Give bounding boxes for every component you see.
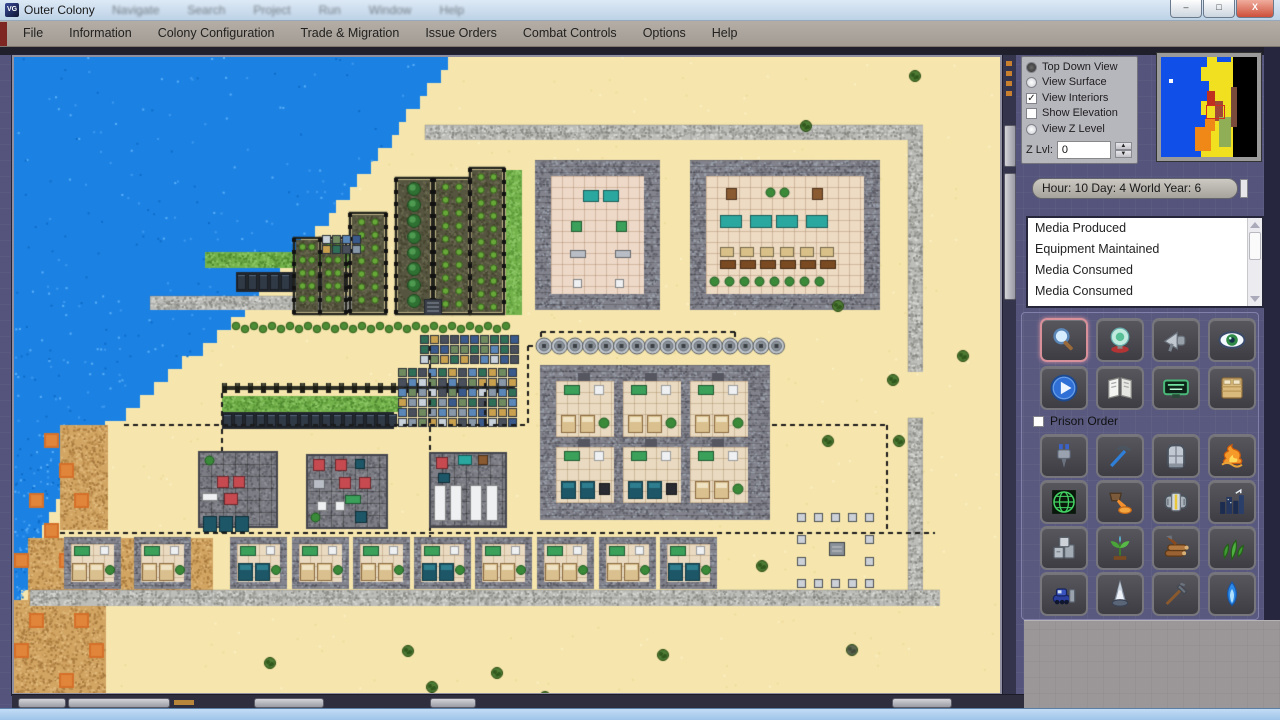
- background-menu-item: Run: [319, 3, 341, 17]
- crystal-ball-icon: [1105, 325, 1135, 355]
- map-horizontal-scrollbar[interactable]: [12, 694, 1024, 709]
- app-icon: VG: [5, 3, 19, 17]
- tool-bulldozer-button[interactable]: [1040, 572, 1088, 616]
- z-level-label: Z Lvl:: [1026, 144, 1053, 156]
- tool-book-button[interactable]: [1096, 366, 1144, 410]
- tool-crystal-ball-button[interactable]: [1096, 318, 1144, 362]
- close-button[interactable]: X: [1236, 0, 1274, 18]
- sprout-icon: [1105, 533, 1135, 563]
- bulldozer-icon: [1049, 579, 1079, 609]
- taskbar-edge: [0, 708, 1280, 720]
- globe-grid-icon: [1049, 487, 1079, 517]
- scrollbar-tick: [1006, 71, 1012, 76]
- spinner-down-icon[interactable]: ▼: [1115, 150, 1132, 158]
- door-icon: [1161, 441, 1191, 471]
- city-icon: [1217, 487, 1247, 517]
- map-frame: [12, 55, 1002, 695]
- spinner-up-icon[interactable]: ▲: [1115, 142, 1132, 150]
- drill-icon: [1049, 441, 1079, 471]
- checkbox-checked[interactable]: ✓: [1026, 93, 1037, 104]
- minimap-region: [1169, 79, 1173, 83]
- menu-bar: FileInformationColony ConfigurationTrade…: [0, 20, 1280, 47]
- menu-help[interactable]: Help: [699, 26, 751, 40]
- title-bar: VG Outer Colony NavigateSearchProjectRun…: [0, 0, 1280, 21]
- background-menu-item: Search: [187, 3, 225, 17]
- tool-cone-button[interactable]: [1096, 572, 1144, 616]
- background-window-menu: NavigateSearchProjectRunWindowHelp: [112, 3, 464, 17]
- tool-pickaxe-button[interactable]: [1096, 434, 1144, 478]
- tool-fire-button[interactable]: [1208, 434, 1256, 478]
- stone-icon: [1049, 533, 1079, 563]
- z-level-input[interactable]: 0: [1057, 141, 1111, 159]
- list-item[interactable]: Media Consumed: [1028, 260, 1248, 281]
- window-title: Outer Colony: [24, 3, 95, 17]
- scrollbar-tick: [1006, 91, 1012, 96]
- tool-play-button[interactable]: [1040, 366, 1088, 410]
- tool-drill-button[interactable]: [1040, 434, 1088, 478]
- minimap-region: [1219, 117, 1231, 147]
- view-option-view-z-level: View Z Level: [1026, 122, 1105, 136]
- tool-logs-button[interactable]: [1152, 526, 1200, 570]
- minimize-button[interactable]: –: [1170, 0, 1202, 18]
- menu-file[interactable]: File: [10, 26, 56, 40]
- tool-stone-button[interactable]: [1040, 526, 1088, 570]
- view-option-label: View Z Level: [1042, 123, 1105, 135]
- neon-sign-icon: [1161, 373, 1191, 403]
- minimap-region: [1201, 57, 1207, 67]
- herb-icon: [1217, 533, 1247, 563]
- tool-magnifier-button[interactable]: [1040, 318, 1088, 362]
- engine-icon: [1161, 487, 1191, 517]
- scroll-thumb[interactable]: [892, 698, 952, 708]
- tool-globe-grid-button[interactable]: [1040, 480, 1088, 524]
- radio-checked[interactable]: [1026, 62, 1037, 73]
- view-option-top-down-view: Top Down View: [1026, 60, 1118, 74]
- bottom-right-panel: [1024, 620, 1280, 709]
- view-option-view-interiors: ✓View Interiors: [1026, 91, 1108, 105]
- scroll-up-icon[interactable]: [1250, 222, 1260, 228]
- tool-crucible-button[interactable]: [1096, 480, 1144, 524]
- scrollbar-tick: [1006, 61, 1012, 66]
- prison-order-row: Prison Order: [1033, 414, 1118, 428]
- scrollbar-tick: [174, 700, 194, 705]
- background-menu-item: Help: [439, 3, 464, 17]
- menu-trade-migration[interactable]: Trade & Migration: [287, 26, 412, 40]
- rake-icon: [1161, 579, 1191, 609]
- minimap-viewport: [1206, 105, 1225, 119]
- background-menu-item: Window: [369, 3, 412, 17]
- scroll-thumb[interactable]: [254, 698, 324, 708]
- list-item[interactable]: Media Produced: [1028, 218, 1248, 239]
- minimap-region: [1217, 57, 1231, 62]
- tool-city-button[interactable]: [1208, 480, 1256, 524]
- menu-options[interactable]: Options: [630, 26, 699, 40]
- play-icon: [1049, 373, 1079, 403]
- view-option-label: View Interiors: [1042, 92, 1108, 104]
- tool-herb-button[interactable]: [1208, 526, 1256, 570]
- scroll-thumb[interactable]: [430, 698, 476, 708]
- logs-icon: [1161, 533, 1191, 563]
- menu-combat-controls[interactable]: Combat Controls: [510, 26, 630, 40]
- magnifier-icon: [1049, 325, 1079, 355]
- pickaxe-icon: [1105, 441, 1135, 471]
- map-canvas[interactable]: [14, 57, 1000, 693]
- menu-issue-orders[interactable]: Issue Orders: [412, 26, 510, 40]
- minimap-region: [1231, 87, 1237, 127]
- megaphone-icon: [1161, 325, 1191, 355]
- outer-colony-window: VG Outer Colony NavigateSearchProjectRun…: [0, 0, 1280, 720]
- minimap[interactable]: [1157, 53, 1261, 161]
- background-menu-item: Project: [253, 3, 290, 17]
- scrollbar-tick: [1006, 81, 1012, 86]
- z-level-spinner: ▲▼: [1115, 142, 1132, 158]
- time-display-scrollbar[interactable]: [1240, 179, 1248, 198]
- menu-information[interactable]: Information: [56, 26, 145, 40]
- scroll-thumb[interactable]: [68, 698, 170, 708]
- radio-unchecked[interactable]: [1026, 124, 1037, 135]
- scroll-thumb[interactable]: [1249, 232, 1261, 260]
- fire-icon: [1217, 441, 1247, 471]
- tool-eye-button[interactable]: [1208, 318, 1256, 362]
- bed-icon: [1217, 373, 1247, 403]
- event-list-items: Media ProducedEquipment MaintainedMedia …: [1028, 218, 1248, 306]
- view-options-panel: Top Down ViewView Surface✓View Interiors…: [1021, 56, 1138, 164]
- minimap-region: [1205, 119, 1215, 131]
- scroll-thumb[interactable]: [1004, 125, 1016, 167]
- tool-neon-sign-button[interactable]: [1152, 366, 1200, 410]
- prison-order-label: Prison Order: [1050, 414, 1118, 428]
- list-item[interactable]: Media Consumed: [1028, 281, 1248, 302]
- event-list-scrollbar[interactable]: [1247, 218, 1262, 306]
- tool-sprout-button[interactable]: [1096, 526, 1144, 570]
- list-item[interactable]: Equipment Maintained: [1028, 239, 1248, 260]
- menu-colony-configuration[interactable]: Colony Configuration: [145, 26, 288, 40]
- map-vertical-scrollbar[interactable]: [1002, 55, 1016, 695]
- window-controls: –□X: [1169, 0, 1274, 18]
- background-menu-item: Navigate: [112, 3, 159, 17]
- tool-blue-flame-button[interactable]: [1208, 572, 1256, 616]
- tool-bed-button[interactable]: [1208, 366, 1256, 410]
- z-level-row: Z Lvl:0▲▼: [1026, 141, 1132, 159]
- event-list: Media ProducedEquipment MaintainedMedia …: [1026, 216, 1264, 308]
- tool-door-button[interactable]: [1152, 434, 1200, 478]
- tool-engine-button[interactable]: [1152, 480, 1200, 524]
- book-icon: [1105, 373, 1135, 403]
- view-option-view-surface: View Surface: [1026, 75, 1107, 89]
- radio-unchecked[interactable]: [1026, 77, 1037, 88]
- view-option-label: View Surface: [1042, 76, 1107, 88]
- checkbox-unchecked[interactable]: [1026, 108, 1037, 119]
- prison-order-checkbox[interactable]: [1033, 416, 1044, 427]
- crucible-icon: [1105, 487, 1135, 517]
- maximize-button[interactable]: □: [1203, 0, 1235, 18]
- scroll-down-icon[interactable]: [1250, 296, 1260, 302]
- right-edge-strip: [1264, 47, 1280, 620]
- time-display: Hour: 10 Day: 4 World Year: 6: [1032, 178, 1238, 199]
- tool-rake-button[interactable]: [1152, 572, 1200, 616]
- tool-megaphone-button[interactable]: [1152, 318, 1200, 362]
- scroll-thumb[interactable]: [1004, 173, 1016, 300]
- view-option-label: Top Down View: [1042, 61, 1118, 73]
- eye-icon: [1217, 325, 1247, 355]
- window-chrome-band: [0, 47, 1280, 55]
- blue-flame-icon: [1217, 579, 1247, 609]
- menubar-accent: [0, 22, 7, 46]
- view-option-show-elevation: Show Elevation: [1026, 106, 1118, 120]
- scroll-thumb[interactable]: [18, 698, 66, 708]
- cone-icon: [1105, 579, 1135, 609]
- view-option-label: Show Elevation: [1042, 107, 1118, 119]
- minimap-region: [1207, 91, 1215, 105]
